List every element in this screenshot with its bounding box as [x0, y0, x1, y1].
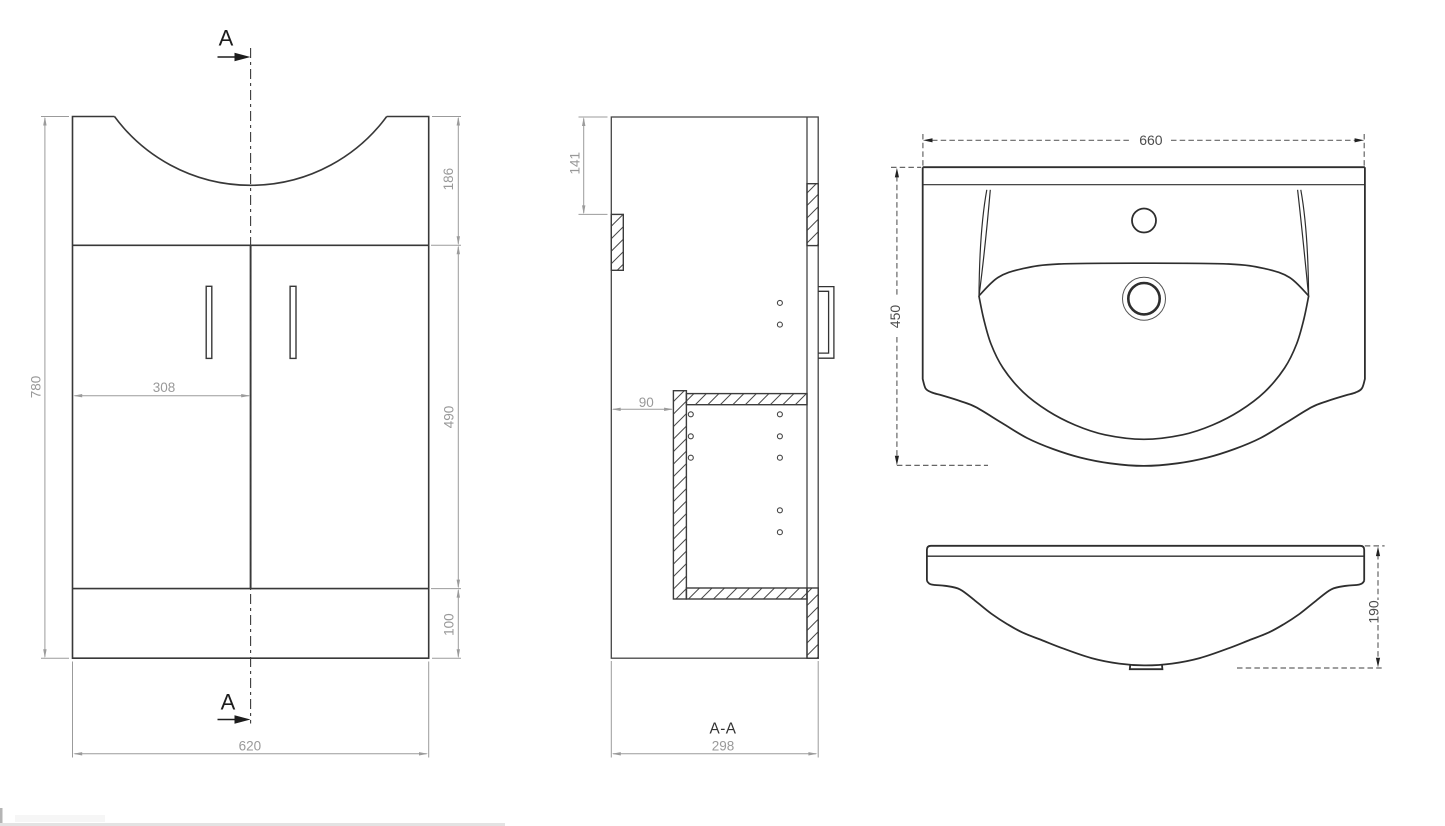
- svg-text:620: 620: [239, 738, 262, 753]
- svg-text:141: 141: [568, 152, 583, 175]
- svg-text:A: A: [219, 26, 234, 51]
- svg-text:780: 780: [28, 376, 43, 399]
- svg-text:100: 100: [442, 613, 457, 636]
- svg-text:660: 660: [1139, 132, 1163, 148]
- svg-text:450: 450: [887, 305, 903, 329]
- svg-text:190: 190: [1366, 600, 1382, 624]
- svg-text:A-A: A-A: [710, 721, 737, 738]
- svg-text:308: 308: [153, 380, 176, 395]
- svg-text:298: 298: [712, 739, 735, 754]
- svg-text:186: 186: [441, 168, 456, 191]
- svg-text:490: 490: [442, 406, 457, 429]
- svg-text:90: 90: [639, 395, 654, 410]
- svg-text:A: A: [221, 690, 236, 715]
